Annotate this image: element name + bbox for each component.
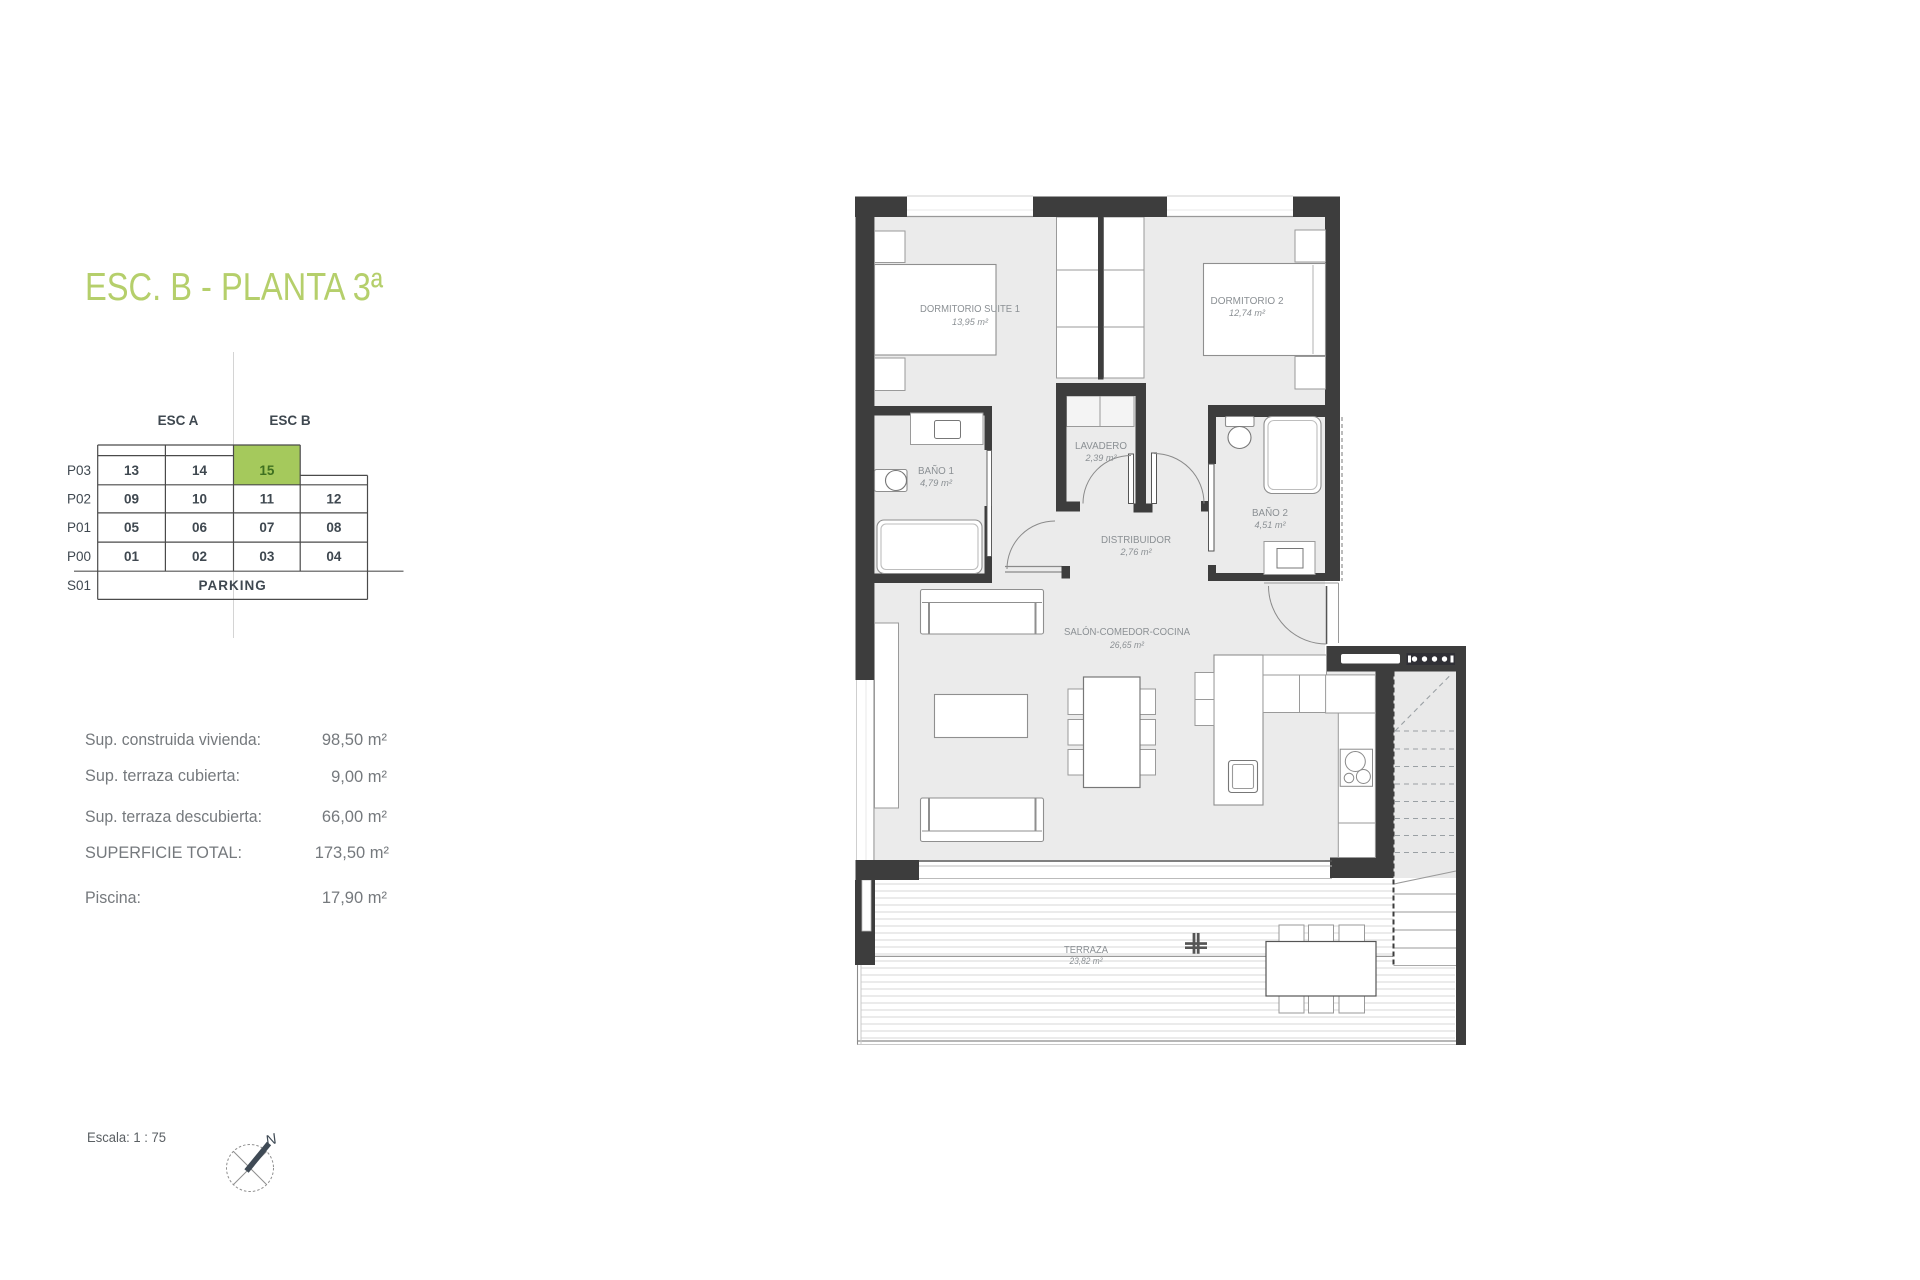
svg-text:23,82 m²: 23,82 m² <box>1069 956 1104 966</box>
svg-text:12: 12 <box>326 492 341 507</box>
svg-text:04: 04 <box>326 549 342 564</box>
svg-text:4,79 m²: 4,79 m² <box>920 478 953 488</box>
svg-text:BAÑO 1: BAÑO 1 <box>918 464 954 477</box>
svg-text:ESC B: ESC B <box>269 413 311 428</box>
svg-text:BAÑO 2: BAÑO 2 <box>1252 506 1288 519</box>
svg-text:LAVADERO: LAVADERO <box>1075 441 1127 452</box>
svg-text:PARKING: PARKING <box>198 578 266 593</box>
svg-text:01: 01 <box>124 549 140 564</box>
svg-text:SALÓN-COMEDOR-COCINA: SALÓN-COMEDOR-COCINA <box>1064 625 1190 638</box>
svg-text:13,95 m²: 13,95 m² <box>952 317 989 327</box>
svg-text:173,50 m²: 173,50 m² <box>315 844 390 862</box>
svg-text:P00: P00 <box>67 549 91 564</box>
svg-text:2,76 m²: 2,76 m² <box>1119 547 1152 557</box>
svg-text:TERRAZA: TERRAZA <box>1064 945 1108 956</box>
svg-text:DISTRIBUIDOR: DISTRIBUIDOR <box>1101 535 1171 546</box>
svg-text:26,65 m²: 26,65 m² <box>1109 640 1145 650</box>
svg-text:S01: S01 <box>67 578 91 593</box>
svg-text:98,50 m²: 98,50 m² <box>322 731 388 749</box>
svg-text:P03: P03 <box>67 463 91 478</box>
svg-text:ESC. B - PLANTA 3ª: ESC. B - PLANTA 3ª <box>85 266 383 309</box>
svg-text:03: 03 <box>259 549 275 564</box>
svg-text:66,00 m²: 66,00 m² <box>322 808 388 826</box>
svg-text:09: 09 <box>124 492 139 507</box>
svg-text:DORMITORIO 2: DORMITORIO 2 <box>1211 296 1284 307</box>
svg-text:P01: P01 <box>67 520 91 535</box>
svg-text:05: 05 <box>124 520 140 535</box>
svg-text:07: 07 <box>259 520 274 535</box>
svg-text:14: 14 <box>192 463 208 478</box>
svg-text:4,51 m²: 4,51 m² <box>1255 520 1287 530</box>
svg-text:11: 11 <box>260 492 275 507</box>
svg-text:Escala: 1 : 75: Escala: 1 : 75 <box>87 1130 166 1145</box>
svg-text:SUPERFICIE TOTAL:: SUPERFICIE TOTAL: <box>85 844 242 862</box>
svg-text:P02: P02 <box>67 492 91 507</box>
svg-text:DORMITORIO SUITE 1: DORMITORIO SUITE 1 <box>920 304 1020 315</box>
svg-text:Sup. construida vivienda:: Sup. construida vivienda: <box>85 731 261 749</box>
svg-text:12,74 m²: 12,74 m² <box>1229 308 1266 318</box>
svg-text:02: 02 <box>192 549 207 564</box>
svg-text:17,90 m²: 17,90 m² <box>322 889 388 907</box>
svg-text:Piscina:: Piscina: <box>85 889 141 907</box>
svg-text:13: 13 <box>124 463 140 478</box>
svg-text:9,00 m²: 9,00 m² <box>331 768 387 786</box>
svg-text:06: 06 <box>192 520 208 535</box>
svg-text:Sup. terraza descubierta:: Sup. terraza descubierta: <box>85 808 262 826</box>
svg-text:ESC A: ESC A <box>158 413 199 428</box>
svg-text:Sup. terraza cubierta:: Sup. terraza cubierta: <box>85 767 240 785</box>
svg-text:10: 10 <box>192 492 207 507</box>
svg-text:15: 15 <box>259 463 275 478</box>
svg-text:2,39 m²: 2,39 m² <box>1084 453 1117 463</box>
svg-text:08: 08 <box>326 520 342 535</box>
